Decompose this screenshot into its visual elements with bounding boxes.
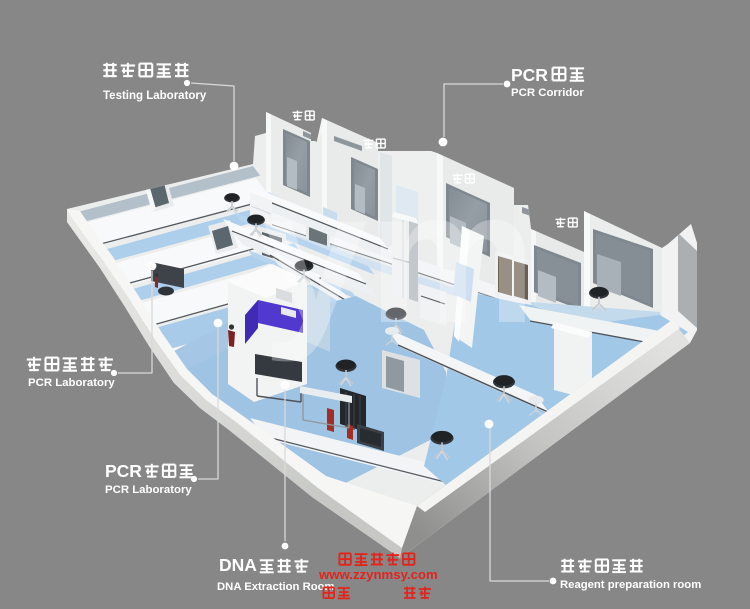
svg-text:DNA: DNA	[219, 555, 257, 575]
svg-text:ym: ym	[262, 151, 537, 363]
svg-text:PCR: PCR	[511, 65, 548, 85]
svg-text:PCR: PCR	[105, 461, 142, 481]
svg-text:PCR Laboratory: PCR Laboratory	[28, 377, 115, 389]
svg-text:www.zzynmsy.com: www.zzynmsy.com	[318, 567, 438, 582]
svg-text:DNA Extraction Room: DNA Extraction Room	[217, 581, 335, 593]
svg-text:Reagent preparation room: Reagent preparation room	[560, 579, 701, 591]
svg-text:PCR Corridor: PCR Corridor	[511, 87, 584, 99]
svg-text:PCR Laboratory: PCR Laboratory	[105, 484, 192, 496]
svg-text:Testing Laboratory: Testing Laboratory	[103, 90, 207, 102]
